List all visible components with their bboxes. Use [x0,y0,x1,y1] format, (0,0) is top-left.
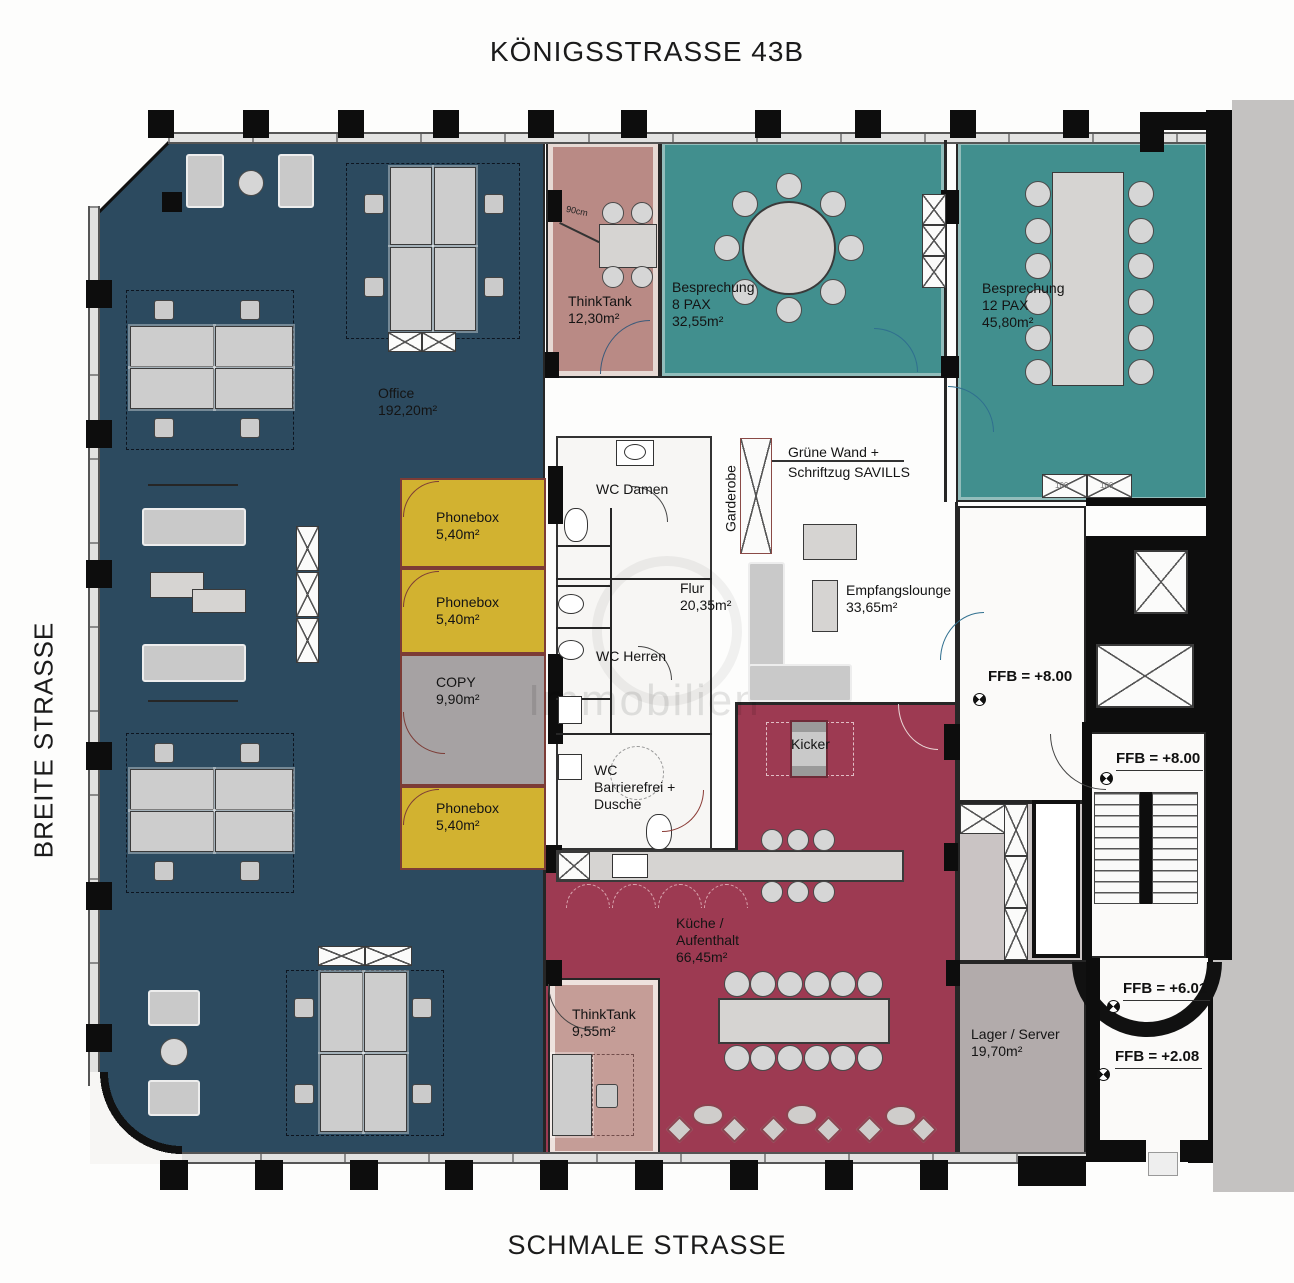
wall-chunk [1164,112,1208,130]
beanbag [885,1105,917,1127]
sideboard [365,946,412,966]
room-name: Flur [680,580,731,597]
room-name: Phonebox [436,509,499,526]
pillar [946,960,960,986]
chair [750,971,776,997]
room-name: Küche / [676,915,739,932]
chair [240,300,260,320]
room-area: 5,40m² [436,526,499,543]
pillar [338,110,364,138]
chair [364,194,384,214]
window-band-bottom [176,1152,1086,1164]
pillar [243,110,269,138]
wall [543,848,546,1160]
chair [154,861,174,881]
desk [215,811,293,852]
empfangslounge-label: Empfangslounge 33,65m² [846,582,951,616]
pillar [350,1160,378,1190]
desk [130,769,214,810]
pillar [621,110,647,138]
chair [412,1084,432,1104]
wall-chunk [1086,498,1208,506]
stair-flight [1152,792,1198,904]
desk [552,1054,592,1136]
garderobe-label: Garderobe [723,454,740,544]
desk [215,326,293,367]
desk [364,972,407,1052]
pillar [855,110,881,138]
room-name: Empfangslounge [846,582,951,599]
chair [714,235,740,261]
chair [484,277,504,297]
room-pax: 8 PAX [672,296,755,313]
outer-wall-right [1206,110,1232,960]
room-area: 32,55m² [672,313,755,330]
pillar [950,110,976,138]
room-area: 9,90m² [436,691,480,708]
sink [558,696,582,724]
pillar [86,882,112,910]
pillar [944,724,960,760]
pillar [255,1160,283,1190]
street-label-left: BREITE STRASSE [29,622,60,859]
besprechung-12-label: Besprechung 12 PAX 45,80m² [982,280,1065,331]
stair-rail [1140,792,1152,904]
sideboard [318,946,365,966]
pillar [1063,110,1089,138]
armchair [186,154,224,208]
room-name: COPY [436,674,480,691]
cabinet [1004,856,1028,908]
pillar [548,466,563,524]
desk [364,1054,407,1132]
chair [857,1045,883,1071]
wc-stall-wall [556,627,612,629]
level-marker-icon [1097,1068,1110,1081]
level-marker-icon [1100,772,1113,785]
lager-label: Lager / Server 19,70m² [971,1026,1060,1060]
bar-chair [787,881,809,903]
annotation-line: Schriftzug SAVILLS [788,464,910,481]
window-band-top [168,132,1208,144]
pillar [86,560,112,588]
chair [838,235,864,261]
room-area: 66,45m² [676,949,739,966]
armchair [148,990,200,1026]
elevator-shaft [1096,644,1194,708]
thinktank-bottom-label: ThinkTank 9,55m² [572,1006,636,1040]
lounge-table [803,524,857,560]
bar-chair [761,829,783,851]
room-area: 5,40m² [436,611,499,628]
room-name: ThinkTank [568,293,632,310]
room-area: 5,40m² [436,817,499,834]
stairwell-wall-bottom [1180,1140,1213,1162]
phonebox-3-label: Phonebox 5,40m² [436,800,499,834]
chair [1128,253,1154,279]
cabinet [922,225,946,256]
chair [294,998,314,1018]
bar-chair [761,881,783,903]
wc-stall-wall [556,545,612,547]
desk [215,368,293,409]
garderobe-wardrobe [740,438,772,554]
sideboard [388,332,422,352]
sink [558,754,582,780]
armchair [148,1080,200,1116]
chair [804,971,830,997]
pillar [540,1160,568,1190]
cabinet [922,256,946,288]
chair [1128,325,1154,351]
chair [820,279,846,305]
pillar [86,742,112,770]
chair [1025,253,1051,279]
wc-herren-label: WC Herren [596,648,666,665]
chair [154,418,174,438]
chair [1025,218,1051,244]
room-name: Office [378,385,437,402]
chair [724,1045,750,1071]
pillar [730,1160,758,1190]
chair [804,1045,830,1071]
room-area: 33,65m² [846,599,951,616]
thinktank-top-label: ThinkTank 12,30m² [568,293,632,327]
desk [434,247,476,331]
level-marker-icon [1107,1000,1120,1013]
wall-chunk [1018,1156,1086,1186]
round-meeting-table [742,201,836,295]
side-table [160,1038,188,1066]
cabinet [296,572,319,617]
pillar [160,1160,188,1190]
kicker-label: Kicker [791,736,830,753]
toilet [558,640,584,660]
room-name: Barrierefrei + [594,779,675,796]
room-name: Dusche [594,796,675,813]
flur-label: Flur 20,35m² [680,580,731,614]
desk [130,326,214,367]
cabinet [296,526,319,571]
pillar [86,1024,112,1052]
pillar [548,190,562,222]
chair [1025,359,1051,385]
copy-label: COPY 9,90m² [436,674,480,708]
bar-chair [813,829,835,851]
chair [1128,218,1154,244]
chair [777,971,803,997]
chair [776,173,802,199]
shaft-box [1032,800,1080,958]
toilet [558,594,584,614]
level-marker-icon [973,693,986,706]
cabinet [1004,804,1028,856]
chair [631,202,653,224]
pillar [635,1160,663,1190]
desk [130,811,214,852]
lounge-table [812,580,838,632]
phonebox-2-label: Phonebox 5,40m² [436,594,499,628]
armchair [278,154,314,208]
cabinet [296,618,319,663]
desk [215,769,293,810]
chair [631,266,653,288]
pillar [825,1160,853,1190]
shelf-line [148,700,238,702]
room-area: 45,80m² [982,314,1065,331]
desk [434,167,476,245]
stairwell-wall-left [1086,958,1100,1160]
sofa [142,508,246,546]
desk [390,247,432,331]
wc-barrierefrei-label: WC Barrierefrei + Dusche [594,762,675,813]
street-label-bottom: SCHMALE STRASSE [0,1230,1294,1261]
chair [750,1045,776,1071]
room-name: Besprechung [672,279,755,296]
adjacent-building-band [1232,100,1294,1192]
door-arc [940,612,984,660]
pillar [433,110,459,138]
chair [857,971,883,997]
wall-chunk [1140,112,1164,152]
pillar [445,1160,473,1190]
chair [724,971,750,997]
chair [412,998,432,1018]
room-area: 19,70m² [971,1043,1060,1060]
desk-cluster-outline [346,163,520,339]
room-area: 9,55m² [572,1023,636,1040]
kitchen-sink [612,854,648,878]
sofa-l-horizontal [748,664,852,702]
sofa [142,644,246,682]
chair [830,971,856,997]
room-name: Aufenthalt [676,932,739,949]
stairwell-wall-bottom [1086,1140,1146,1162]
chair [1128,289,1154,315]
chair [732,191,758,217]
pillar [86,280,112,308]
room-name: Phonebox [436,800,499,817]
toilet [564,508,588,542]
ffb-label-208: FFB = +2.08 [1115,1048,1202,1069]
kitchen-counter [556,850,904,882]
basin [624,444,646,460]
meeting-table [599,224,657,268]
pillar [545,352,559,378]
beanbag [786,1104,818,1126]
chair [1128,181,1154,207]
desk [320,972,363,1052]
pillar [86,420,112,448]
side-table [238,170,264,196]
room-area: 12,30m² [568,310,632,327]
bar-chair [787,829,809,851]
elevator-shaft [1134,550,1188,614]
pillar [941,356,959,378]
chair [364,277,384,297]
chair [596,1084,618,1108]
cabinet [922,194,946,225]
room-name: Besprechung [982,280,1065,297]
room-name: WC [594,762,675,779]
desk [130,368,214,409]
room-name: ThinkTank [572,1006,636,1023]
annotation-line: Grüne Wand + [788,444,910,461]
beanbag [692,1104,724,1126]
chair [1025,181,1051,207]
room-area: 20,35m² [680,597,731,614]
desk [320,1054,363,1132]
room-area: 192,20m² [378,402,437,419]
floorplan-page: KÖNIGSSTRASSE 43B BREITE STRASSE SCHMALE… [0,0,1294,1283]
chair [820,191,846,217]
pillar [755,110,781,138]
dining-table [718,998,890,1044]
chair [154,300,174,320]
pillar [920,1160,948,1190]
chair [777,1045,803,1071]
ffb-label-stair-mid: FFB = +8.00 [1116,750,1203,771]
window-band-left [88,206,100,1086]
cabinet [960,804,1006,834]
chair [776,297,802,323]
room-pax: 12 PAX [982,297,1065,314]
kueche-label: Küche / Aufenthalt 66,45m² [676,915,739,966]
sideboard-dim: 100 [1055,481,1068,490]
sideboard [422,332,456,352]
room-name: Lager / Server [971,1026,1060,1043]
pillar [148,110,174,138]
chair [602,266,624,288]
desk [390,167,432,245]
wc-damen-label: WC Damen [596,481,668,498]
chair [154,743,174,763]
chair [294,1084,314,1104]
room-name: Phonebox [436,594,499,611]
entry-step [1148,1152,1178,1176]
shelf-line [148,484,238,486]
long-meeting-table [1052,172,1124,386]
wc-wall [556,733,712,735]
pillar [162,192,182,212]
bar-chair [813,881,835,903]
chair [240,418,260,438]
pillar [944,843,958,871]
phonebox-1-label: Phonebox 5,40m² [436,509,499,543]
besprechung-8-label: Besprechung 8 PAX 32,55m² [672,279,755,330]
page-title: KÖNIGSSTRASSE 43B [0,36,1294,68]
pillar [528,110,554,138]
coffee-table [192,589,246,613]
wc-stall-wall [556,585,612,587]
room-lager-server [958,962,1086,1160]
sideboard-dim: 100 [1100,481,1113,490]
gruene-wand-label: Grüne Wand + Schriftzug SAVILLS [788,444,910,481]
chair [602,202,624,224]
chair [1128,359,1154,385]
pillar [546,960,562,986]
stair-flight [1094,792,1140,904]
chair [240,861,260,881]
kitchen-cabinet [558,852,590,880]
chair [240,743,260,763]
office-label: Office 192,20m² [378,385,437,419]
ffb-label-upper-room: FFB = +8.00 [988,668,1072,685]
chair [830,1045,856,1071]
cabinet [1004,908,1028,960]
chair [484,194,504,214]
ffb-label-601: FFB = +6.01 [1123,980,1210,1001]
